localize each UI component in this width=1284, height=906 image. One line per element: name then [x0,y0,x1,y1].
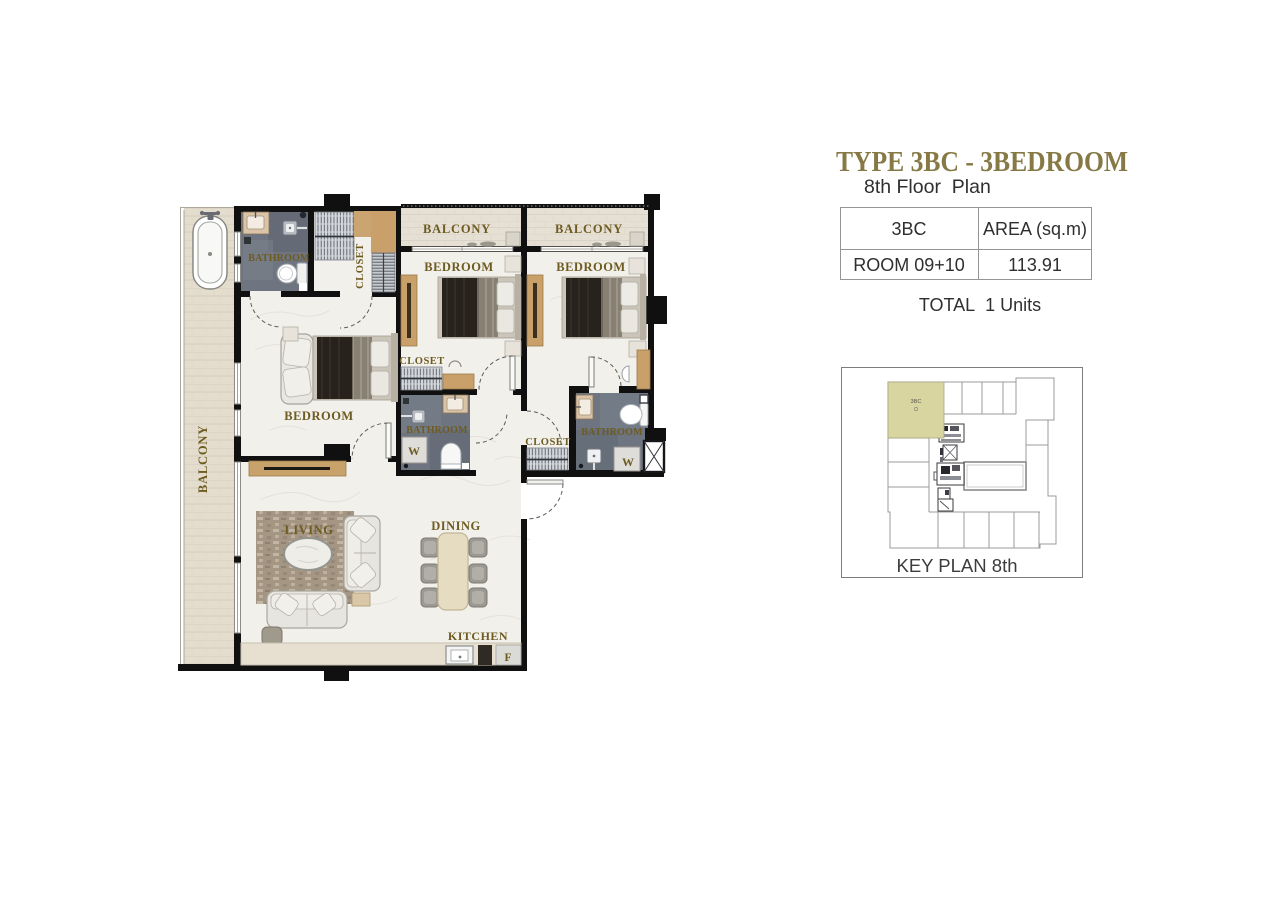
svg-text:BEDROOM: BEDROOM [284,409,353,423]
svg-text:3BC: 3BC [891,219,926,239]
svg-text:8th Floor Plan: 8th Floor Plan [864,176,991,198]
svg-text:AREA (sq.m): AREA (sq.m) [983,219,1087,239]
svg-text:BALCONY: BALCONY [423,222,491,236]
svg-text:F: F [504,652,511,664]
svg-text:DINING: DINING [431,519,481,533]
svg-text:W: W [408,444,420,458]
svg-text:3BC: 3BC [911,399,922,405]
svg-text:BEDROOM: BEDROOM [556,260,625,274]
svg-text:BALCONY: BALCONY [196,425,210,493]
svg-text:BATHROOM: BATHROOM [406,425,468,436]
svg-text:LIVING: LIVING [285,523,334,537]
svg-text:CLOSET: CLOSET [355,243,366,289]
svg-text:BEDROOM: BEDROOM [424,260,493,274]
svg-text:ROOM 09+10: ROOM 09+10 [853,255,965,275]
svg-text:CLOSET: CLOSET [525,437,571,448]
svg-text:KEY PLAN 8th: KEY PLAN 8th [896,555,1017,576]
svg-text:BATHROOM: BATHROOM [248,253,310,264]
svg-text:CLOSET: CLOSET [399,356,445,367]
svg-text:KITCHEN: KITCHEN [448,629,508,643]
svg-text:BATHROOM: BATHROOM [581,427,643,438]
svg-text:BALCONY: BALCONY [555,222,623,236]
svg-text:113.91: 113.91 [1008,255,1062,275]
svg-text:TYPE 3BC - 3BEDROOM: TYPE 3BC - 3BEDROOM [836,146,1128,178]
svg-text:TOTAL 1 Units: TOTAL 1 Units [919,295,1041,315]
svg-text:W: W [622,455,634,469]
